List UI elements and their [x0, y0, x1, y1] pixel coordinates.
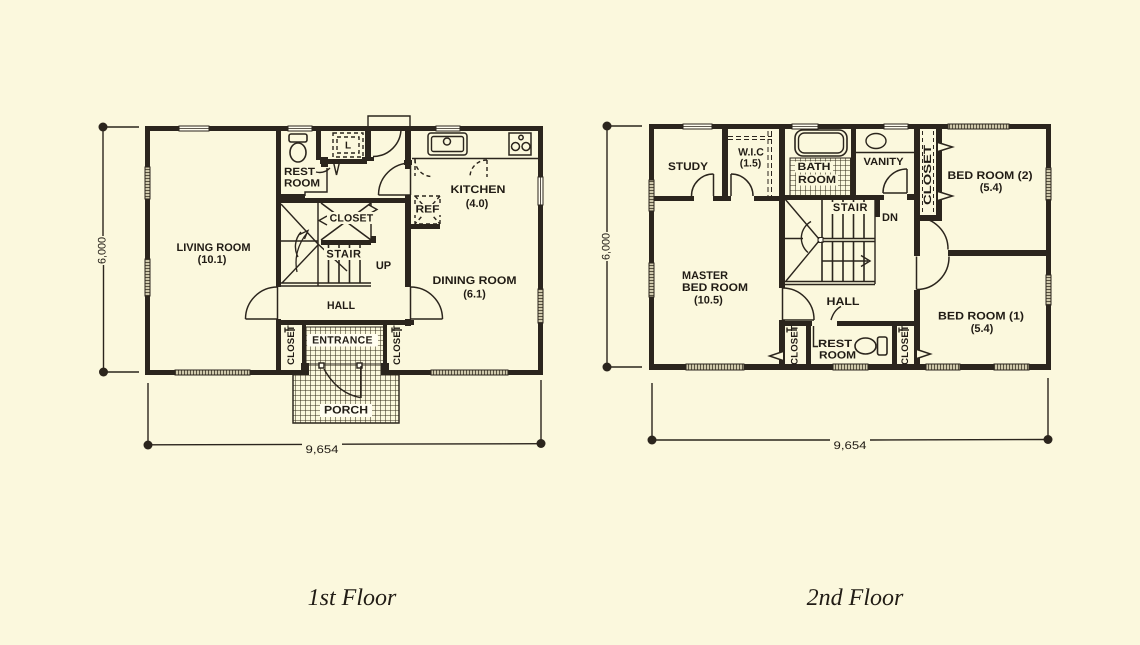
svg-text:MASTER: MASTER [682, 270, 728, 282]
svg-text:BED ROOM (1): BED ROOM (1) [938, 311, 1024, 323]
svg-text:2nd Floor: 2nd Floor [807, 585, 904, 611]
svg-text:(5.4): (5.4) [971, 323, 994, 335]
svg-text:REST: REST [284, 166, 316, 178]
svg-text:L: L [345, 141, 351, 152]
svg-text:(1.5): (1.5) [740, 158, 762, 170]
svg-text:ROOM: ROOM [284, 178, 320, 190]
svg-text:UP: UP [376, 260, 391, 272]
svg-text:1st Floor: 1st Floor [308, 585, 397, 611]
svg-text:VANITY: VANITY [864, 156, 904, 168]
svg-text:STAIR: STAIR [833, 202, 868, 214]
svg-text:ENTRANCE: ENTRANCE [312, 335, 373, 347]
svg-text:CLOSET: CLOSET [790, 325, 801, 365]
svg-text:CLOSET: CLOSET [286, 325, 297, 365]
svg-text:ROOM: ROOM [798, 174, 836, 186]
svg-text:(10.1): (10.1) [198, 254, 227, 266]
svg-text:CLOSET: CLOSET [330, 213, 374, 225]
svg-text:HALL: HALL [827, 296, 860, 308]
svg-text:BED ROOM (2): BED ROOM (2) [948, 170, 1033, 182]
svg-text:(4.0): (4.0) [466, 198, 489, 210]
svg-text:DINING ROOM: DINING ROOM [433, 275, 517, 287]
svg-text:STUDY: STUDY [668, 161, 709, 173]
svg-text:(10.5): (10.5) [694, 295, 723, 307]
svg-text:9,654: 9,654 [834, 440, 867, 452]
svg-text:6,000: 6,000 [601, 233, 613, 260]
svg-text:STAIR: STAIR [326, 249, 361, 261]
svg-text:6,000: 6,000 [97, 237, 109, 264]
svg-text:9,654: 9,654 [306, 444, 339, 456]
svg-text:BED ROOM: BED ROOM [682, 282, 748, 294]
svg-text:DN: DN [882, 212, 898, 224]
svg-text:PORCH: PORCH [324, 405, 368, 417]
svg-text:BATH: BATH [798, 161, 831, 173]
svg-text:ROOM: ROOM [819, 350, 856, 362]
svg-text:LIVING ROOM: LIVING ROOM [177, 242, 251, 254]
svg-text:REF: REF [416, 204, 441, 216]
svg-text:CLOSET: CLOSET [392, 325, 403, 365]
svg-text:HALL: HALL [327, 300, 355, 312]
svg-text:KITCHEN: KITCHEN [451, 184, 506, 196]
svg-text:CLOSET: CLOSET [900, 325, 911, 365]
svg-text:REST: REST [818, 338, 853, 350]
svg-text:CLOSET: CLOSET [922, 144, 934, 205]
svg-text:(6.1): (6.1) [463, 289, 486, 301]
svg-text:(5.4): (5.4) [980, 182, 1003, 194]
